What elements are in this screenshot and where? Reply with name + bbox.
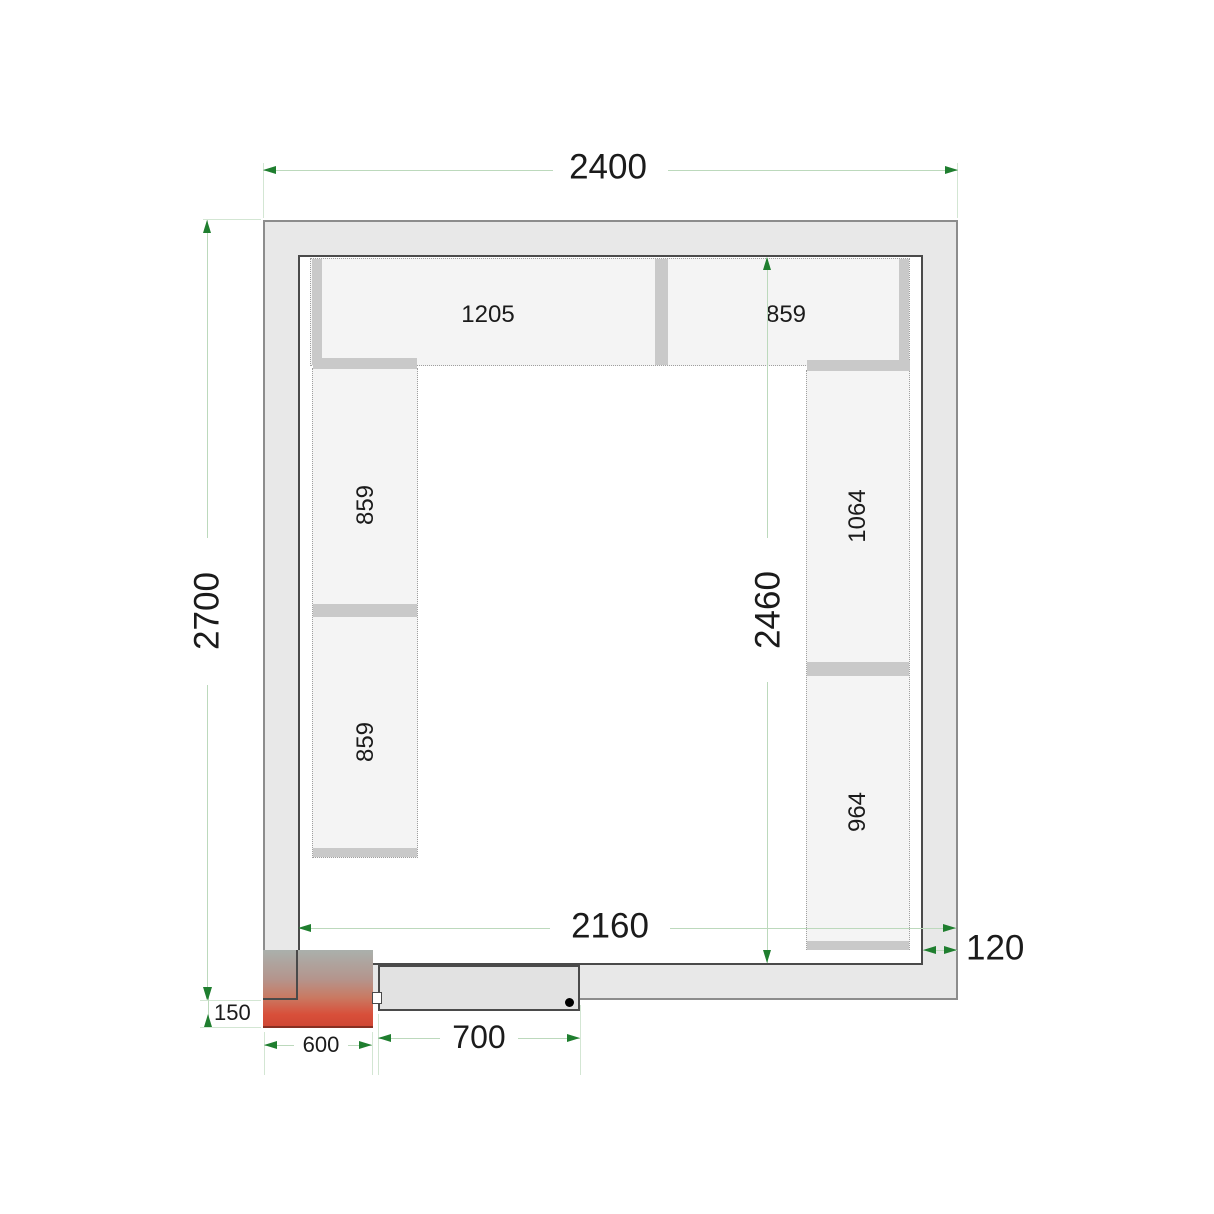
dim-label-outer-width: 2400 bbox=[569, 150, 647, 185]
dim-arrow-up bbox=[204, 1014, 212, 1027]
shelf-end-bar bbox=[313, 358, 417, 369]
dimension-line-2460 bbox=[767, 258, 768, 538]
shelf-label-right-upper: 1064 bbox=[846, 489, 870, 542]
dim-arrow-right bbox=[359, 1041, 372, 1049]
dim-label-unit-width: 600 bbox=[303, 1034, 340, 1056]
shelf-end-bar bbox=[312, 259, 322, 365]
shelf-label-top-left: 1205 bbox=[461, 303, 514, 327]
wall-edge-line bbox=[296, 950, 298, 1000]
door-leaf bbox=[378, 965, 580, 1011]
dimension-line-2400 bbox=[668, 170, 958, 171]
shelf-label-top-right: 859 bbox=[766, 303, 806, 327]
door-hinge bbox=[372, 992, 382, 1004]
dim-label-inner-depth: 2460 bbox=[751, 571, 786, 649]
dimension-line-2460 bbox=[767, 682, 768, 963]
dim-arrow-right bbox=[943, 924, 956, 932]
extension-line bbox=[200, 1027, 261, 1028]
dim-arrow-up bbox=[203, 220, 211, 233]
extension-line bbox=[580, 1005, 581, 1075]
extension-line bbox=[378, 1014, 379, 1075]
shelf-run-top bbox=[310, 258, 910, 366]
shelf-end-bar bbox=[899, 259, 909, 365]
dim-arrow-right bbox=[944, 946, 957, 954]
shelf-end-bar bbox=[807, 941, 909, 950]
dim-arrow-right bbox=[945, 166, 958, 174]
refrigeration-unit bbox=[263, 950, 373, 1028]
shelf-divider-bar bbox=[313, 604, 417, 617]
shelf-end-bar bbox=[807, 360, 910, 371]
dim-label-inner-width: 2160 bbox=[571, 909, 649, 944]
dim-arrow-right bbox=[567, 1034, 580, 1042]
dimension-line-2700 bbox=[207, 220, 208, 538]
dim-arrow-left bbox=[378, 1034, 391, 1042]
dim-label-outer-depth: 2700 bbox=[190, 572, 225, 650]
shelf-divider-bar bbox=[655, 259, 668, 365]
dim-label-door-width: 700 bbox=[452, 1021, 505, 1053]
shelf-label-left-upper: 859 bbox=[354, 485, 378, 525]
dimension-line-2160 bbox=[670, 928, 956, 929]
dim-arrow-left bbox=[923, 946, 936, 954]
dim-arrow-left bbox=[298, 924, 311, 932]
dim-label-wall-thickness: 120 bbox=[966, 931, 1024, 966]
wall-edge-line bbox=[263, 998, 298, 1000]
dimension-line-2400 bbox=[263, 170, 553, 171]
cold-room-floor-plan: 1205 859 859 859 1064 964 2400 2700 2460… bbox=[0, 0, 1214, 1214]
dimension-line-2700 bbox=[207, 685, 208, 1000]
dim-arrow-up bbox=[763, 257, 771, 270]
dim-label-unit-protrusion: 150 bbox=[214, 1002, 251, 1024]
shelf-run-right bbox=[806, 370, 910, 950]
extension-line bbox=[264, 1032, 265, 1075]
shelf-divider-bar bbox=[807, 662, 909, 676]
dim-arrow-down bbox=[763, 950, 771, 963]
shelf-label-left-lower: 859 bbox=[354, 722, 378, 762]
dim-arrow-left bbox=[263, 166, 276, 174]
shelf-end-bar bbox=[313, 848, 417, 857]
dim-arrow-left bbox=[264, 1041, 277, 1049]
extension-line bbox=[372, 1032, 373, 1075]
door-handle-dot bbox=[565, 998, 574, 1007]
shelf-label-right-lower: 964 bbox=[846, 792, 870, 832]
dim-arrow-down bbox=[204, 987, 212, 1000]
extension-line bbox=[203, 219, 261, 220]
dimension-line-2160 bbox=[300, 928, 550, 929]
